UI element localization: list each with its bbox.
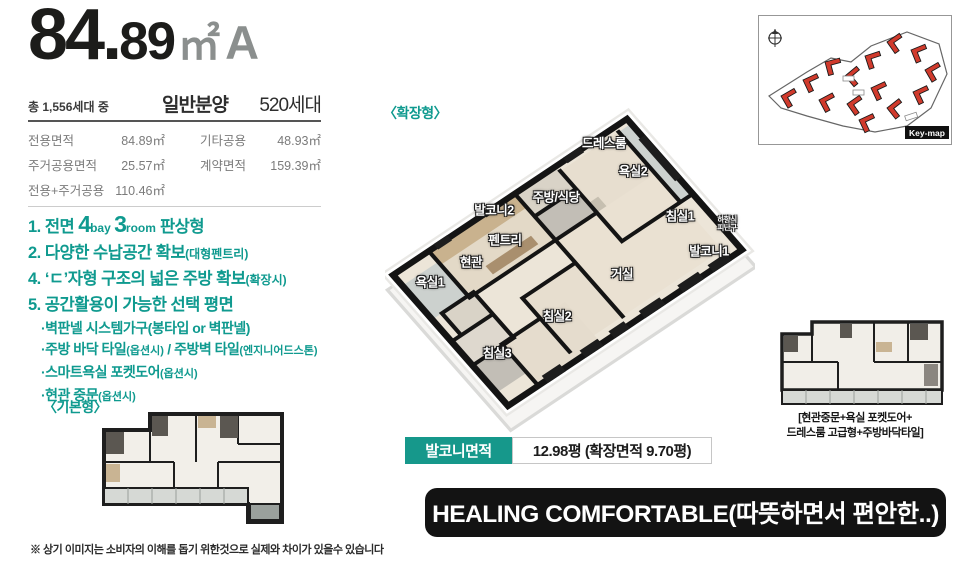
balcony-area-label: 발코니면적 [405,437,512,464]
sale-units: 520세대 [259,90,321,117]
room-label-entrance: 현관 [460,252,482,271]
room-label-living: 거실 [611,264,633,283]
room-label-kitchen: 주방/식당 [533,187,580,206]
feature-text: / 주방벽 타일 [164,341,239,357]
feature-item: 5. 공간활용이 가능한 선택 평면 [28,293,358,318]
area-table: 전용면적 84.89㎡ 기타공용 48.93㎡ 주거공용면적 25.57㎡ 계약… [28,126,321,207]
feature-sublist: ·벽판넬 시스템가구(봉타입 or 벽판넬) ·주방 바닥 타일(옵션시) / … [41,318,358,408]
option-caption-line1: [현관중문+욕실 포켓도어+ [752,411,958,426]
keymap-buildings [781,33,945,132]
escape-line2: 피난구 [717,224,736,232]
feature-item: 4. ‘ㄷ’자형 구조의 넓은 주방 확보(확장시) [28,267,358,293]
disclaimer-footnote: ※ 상기 이미지는 소비자의 이해를 돕기 위한것으로 실제와 차이가 있을수 … [30,541,384,557]
feature-subitem: ·주방 바닥 타일(옵션시) / 주방벽 타일(엔지니어드스톤) [41,339,358,362]
area-value: 110.46㎡ [28,180,165,199]
room-label-bed1: 침실1 [666,206,694,225]
slogan-banner: HEALING COMFORTABLE(따뜻하면서 편안한..) [425,488,946,537]
compass-icon [768,29,782,47]
room-label-dressroom: 드레스룸 [582,133,626,152]
feature-text: 1. 전면 [28,218,78,236]
room-label-bed2: 침실2 [543,306,571,325]
feature-text: ·스마트욕실 포켓도어 [41,364,160,380]
room-label-pantry: 펜트리 [488,230,521,249]
area-unit: ㎡ [178,11,220,72]
floorplan-body [385,109,753,415]
room-label-bed3: 침실3 [483,343,511,362]
balcony-area-strip: 발코니면적 12.98평 (확장면적 9.70평) [405,437,712,464]
unit-type: A [225,15,259,70]
room-label-balcony2: 발코니2 [474,200,513,219]
keymap-label-badge: Key-map [905,126,949,139]
room-label-bath1: 욕실1 [416,272,444,291]
feature-text: 5. 공간활용이 가능한 선택 평면 [28,296,233,314]
feature-text: ·벽판넬 시스템가구(봉타입 or 벽판넬) [41,320,250,336]
feature-subitem: ·스마트욕실 포켓도어(옵션시) [41,362,358,385]
feature-text: (엔지니어드스톤) [239,345,317,357]
feature-subitem: ·벽판넬 시스템가구(봉타입 or 벽판넬) [41,318,358,339]
option-caption-line2: 드레스룸 고급형+주방바닥타일] [752,426,958,441]
option-floorplan-thumbnail [778,318,946,410]
area-value: 48.93㎡ [200,130,321,149]
feature-text: (옵션시) [126,345,164,357]
feature-item: 1. 전면 4bay 3room 판상형 [28,212,358,241]
feature-text: 2. 다양한 수납공간 확보 [28,244,185,262]
option-caption: [현관중문+욕실 포켓도어+ 드레스룸 고급형+주방바닥타일] [752,411,958,441]
feature-text: ·주방 바닥 타일 [41,341,126,357]
room-label-bath2: 욕실2 [619,161,647,180]
feature-text: 4. ‘ㄷ’자형 구조의 넓은 주방 확보 [28,270,246,288]
feature-text: 3 [114,211,126,237]
feature-text: (확장시) [246,273,287,287]
feature-text: 판상형 [156,218,204,236]
area-number-big: 84. [28,0,119,76]
area-number-small: 89 [119,11,174,72]
feature-text: (대형펜트리) [185,247,248,261]
keymap-panel: Key-map [758,15,952,145]
area-value: 84.89㎡ [28,130,165,149]
room-label-escape-hatch: 하향식피난구 [717,216,736,232]
table-row: 전용+주거공용 110.46㎡ [28,176,321,201]
sale-summary-row: 총 1,556세대 중 일반분양 520세대 [28,92,321,122]
flyer-canvas: 84. 89 ㎡ A 총 1,556세대 중 일반분양 520세대 전용면적 8… [0,0,960,565]
sale-type: 일반분양 [162,90,228,117]
area-value: 159.39㎡ [200,155,321,174]
total-households: 총 1,556세대 중 [28,98,109,115]
feature-text: (옵션시) [160,368,198,380]
keymap-drawing: Key-map [759,16,951,144]
table-row: 전용면적 84.89㎡ 기타공용 48.93㎡ [28,126,321,151]
balcony-area-value: 12.98평 (확장면적 9.70평) [512,437,712,464]
basic-floorplan-thumbnail [98,404,288,532]
keymap-label-text: Key-map [909,128,945,138]
area-value: 25.57㎡ [28,155,165,174]
unit-area-title: 84. 89 ㎡ A [28,0,259,72]
room-label-balcony1: 발코니1 [689,241,728,260]
feature-text: bay [90,221,114,235]
feature-list: 1. 전면 4bay 3room 판상형 2. 다양한 수납공간 확보(대형펜트… [28,212,358,408]
feature-item: 2. 다양한 수납공간 확보(대형펜트리) [28,241,358,267]
table-row: 주거공용면적 25.57㎡ 계약면적 159.39㎡ [28,151,321,176]
feature-text: 4 [78,211,90,237]
feature-text: room [126,221,156,235]
